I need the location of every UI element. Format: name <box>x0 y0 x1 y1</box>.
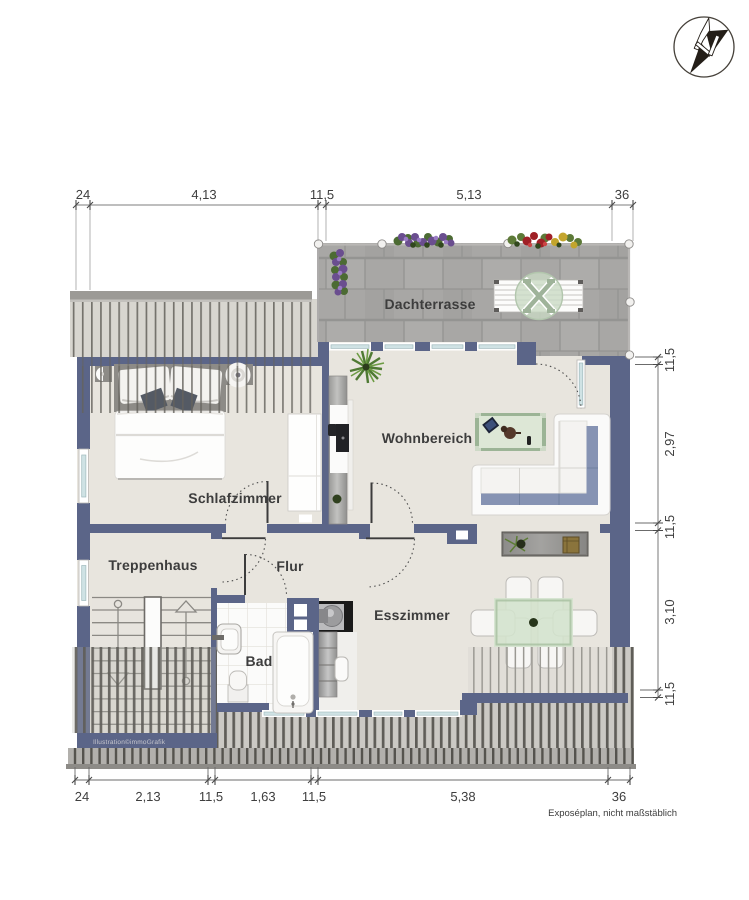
svg-text:24: 24 <box>75 789 89 804</box>
svg-text:Treppenhaus: Treppenhaus <box>108 557 197 573</box>
svg-text:36: 36 <box>612 789 626 804</box>
svg-text:2,97: 2,97 <box>662 431 677 456</box>
svg-text:11,5: 11,5 <box>310 187 334 202</box>
svg-text:11,5: 11,5 <box>199 789 223 804</box>
svg-text:Flur: Flur <box>276 558 304 574</box>
svg-text:3,10: 3,10 <box>662 599 677 624</box>
svg-text:Exposéplan, nicht maßstäblich: Exposéplan, nicht maßstäblich <box>548 808 677 819</box>
svg-text:2,13: 2,13 <box>135 789 160 804</box>
svg-text:24: 24 <box>76 187 90 202</box>
svg-text:5,13: 5,13 <box>456 187 481 202</box>
svg-text:11,5: 11,5 <box>662 515 677 539</box>
svg-text:36: 36 <box>615 187 629 202</box>
svg-text:Dachterrasse: Dachterrasse <box>384 296 475 312</box>
svg-text:Illustration©immoGrafik: Illustration©immoGrafik <box>93 739 166 746</box>
svg-text:11,5: 11,5 <box>302 789 326 804</box>
svg-text:4,13: 4,13 <box>191 187 216 202</box>
svg-text:Schlafzimmer: Schlafzimmer <box>188 490 282 506</box>
svg-text:11,5: 11,5 <box>662 682 677 706</box>
svg-text:5,38: 5,38 <box>450 789 475 804</box>
svg-text:1,63: 1,63 <box>250 789 275 804</box>
svg-text:11,5: 11,5 <box>662 348 677 372</box>
svg-text:Wohnbereich: Wohnbereich <box>382 430 473 446</box>
svg-text:Bad: Bad <box>245 653 272 669</box>
svg-text:Esszimmer: Esszimmer <box>374 607 450 623</box>
